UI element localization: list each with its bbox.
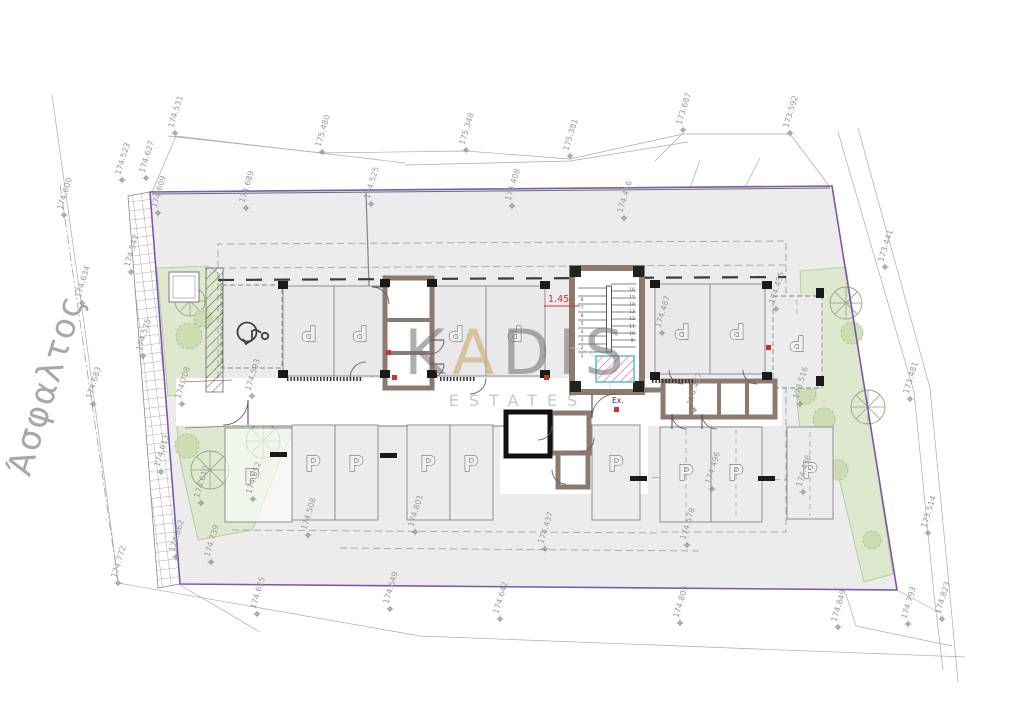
- tree-icon: [830, 287, 862, 319]
- parking-space-letter: P: [674, 319, 689, 343]
- step-number: 15: [629, 294, 635, 300]
- exit-label: Ex.: [612, 396, 624, 405]
- shrub-icon: [863, 531, 881, 549]
- watermark-subtitle: ESTATES: [449, 391, 588, 410]
- elevator-lobby-rooms: [551, 413, 589, 487]
- site-floor-plan: PPPPPPPPPPPPPPPP: [0, 0, 1035, 712]
- elevator-shaft: [506, 412, 550, 456]
- shrub-icon: [841, 322, 863, 344]
- parking-space-letter: P: [352, 321, 367, 345]
- parking-space-letter: P: [729, 319, 744, 343]
- step-number: 14: [629, 302, 635, 308]
- shrub-icon: [175, 434, 199, 458]
- shrub-icon: [176, 323, 202, 349]
- step-number: 7: [581, 305, 584, 311]
- storage-row-right: [644, 381, 775, 417]
- parking-space-letter: P: [608, 452, 623, 476]
- parking-space-letter: P: [348, 452, 363, 476]
- parking-space-letter: P: [463, 452, 478, 476]
- dimension-text: 1.45: [548, 294, 569, 305]
- watermark-word: KADIS: [404, 316, 631, 389]
- step-number: 16: [629, 287, 635, 293]
- parking-space-letter: P: [301, 321, 316, 345]
- parking-space-letter: P: [789, 331, 804, 355]
- planter-box: [169, 272, 199, 302]
- hatched-walkway: [206, 268, 223, 392]
- parking-space-letter: P: [305, 452, 320, 476]
- parking-space-letter: P: [678, 461, 693, 485]
- accessible-parking-stall: [222, 285, 282, 368]
- step-number: 13: [629, 309, 635, 315]
- step-number: 8: [581, 297, 584, 303]
- parking-space-letter: P: [420, 452, 435, 476]
- parking-space-letter: P: [728, 461, 743, 485]
